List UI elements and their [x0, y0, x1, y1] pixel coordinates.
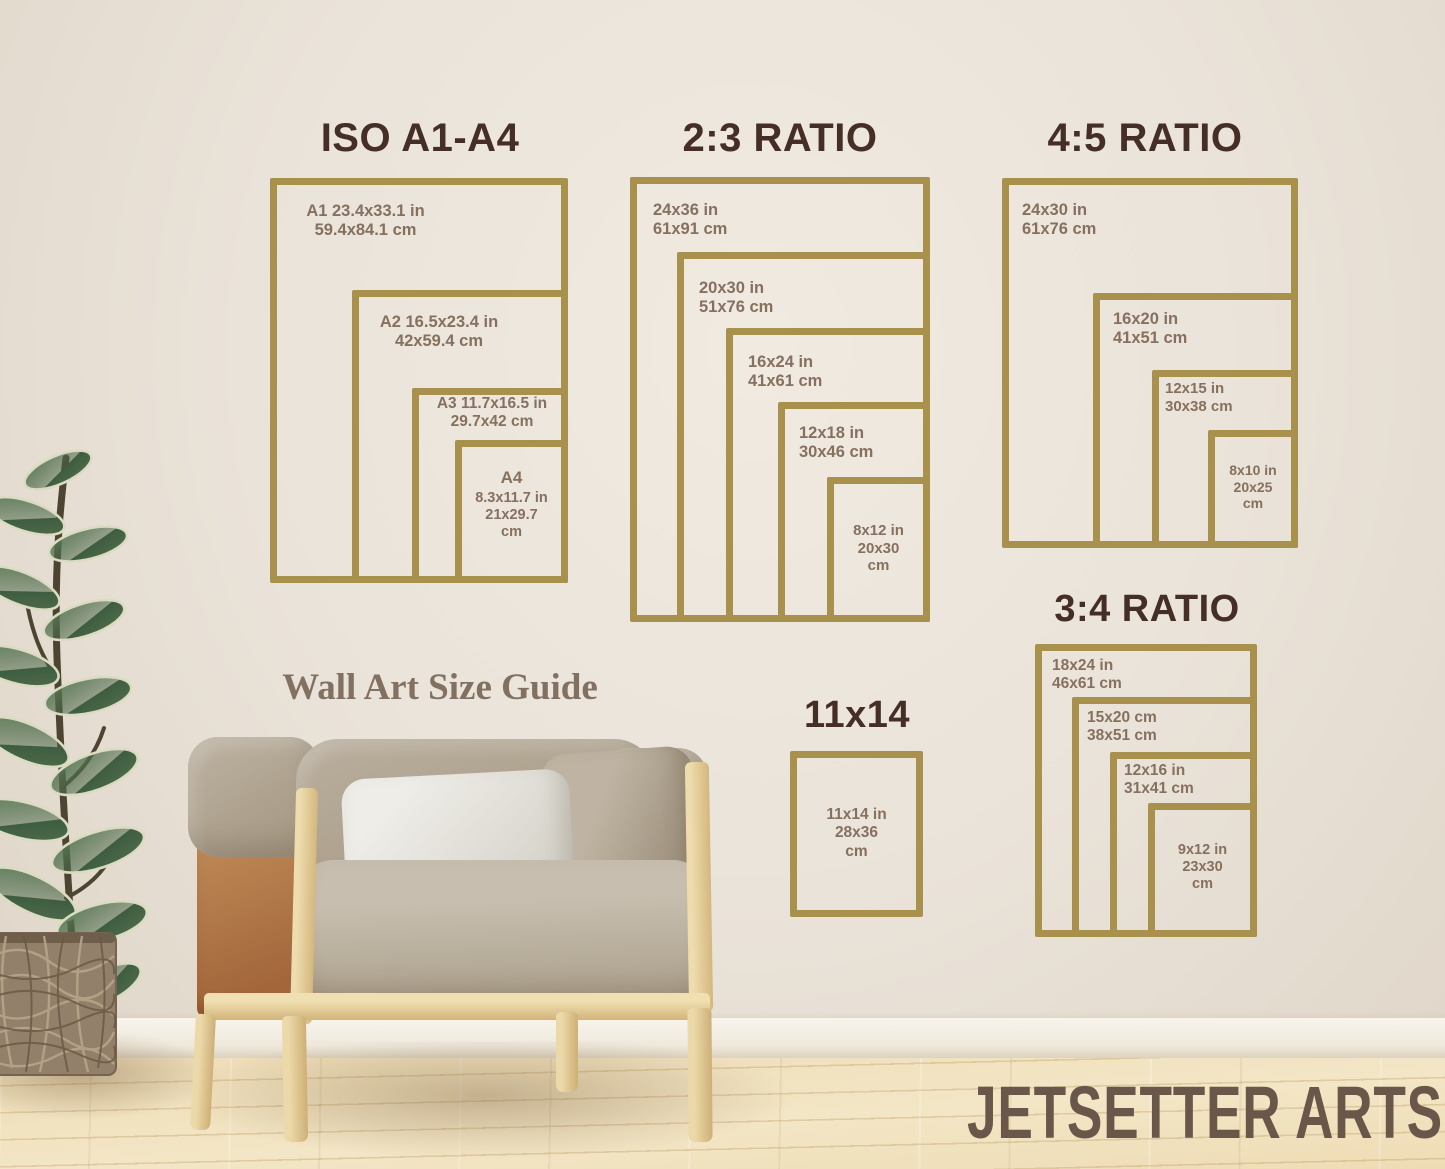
size-label-line: 59.4x84.1 cm — [288, 221, 443, 240]
frame-label-12x16: 12x16 in 31x41 cm — [1124, 762, 1242, 799]
chair-wood-rail — [204, 993, 710, 1020]
frame-label-a4: A4 8.3x11.7 in 21x29.7 cm — [459, 468, 564, 541]
group-title-iso: ISO A1-A4 — [270, 118, 570, 158]
size-label-line: 8x12 in — [830, 522, 927, 540]
chair-leg-rear-right — [556, 1012, 578, 1092]
frame-label-12x18: 12x18 in 30x46 cm — [799, 424, 919, 463]
frame-label-9x12: 9x12 in 23x30 cm — [1150, 842, 1255, 893]
size-label-line: 41x61 cm — [748, 372, 868, 391]
group-title-11x14: 11x14 — [787, 696, 927, 734]
frame-label-12x15: 12x15 in 30x38 cm — [1165, 380, 1275, 415]
size-label-line: A1 23.4x33.1 in — [288, 202, 443, 221]
size-label-line: 31x41 cm — [1124, 780, 1242, 798]
size-label-line: 46x61 cm — [1052, 675, 1170, 693]
size-label-line: 15x20 cm — [1087, 709, 1205, 727]
frame-label-24x36: 24x36 in 61x91 cm — [653, 201, 773, 240]
size-label-line: 16x24 in — [748, 353, 868, 372]
guide-title: Wall Art Size Guide — [250, 666, 630, 709]
frame-label-11x14: 11x14 in 28x36 cm — [793, 806, 920, 861]
size-label-line: A3 11.7x16.5 in — [422, 395, 562, 413]
size-label-line: 9x12 in — [1150, 842, 1255, 859]
size-label-line: cm — [830, 557, 927, 575]
size-label-line: 61x76 cm — [1022, 220, 1142, 239]
size-label-line: 18x24 in — [1052, 657, 1170, 675]
size-label-line: 30x38 cm — [1165, 398, 1275, 416]
frame-label-8x10: 8x10 in 20x25 cm — [1210, 462, 1296, 512]
size-label-line: 51x76 cm — [699, 298, 819, 317]
frame-label-16x24: 16x24 in 41x61 cm — [748, 353, 868, 392]
brand-text: JETSETTER ARTS — [967, 1076, 1443, 1150]
frame-label-a3: A3 11.7x16.5 in 29.7x42 cm — [422, 395, 562, 432]
frame-label-a1: A1 23.4x33.1 in 59.4x84.1 cm — [288, 202, 443, 241]
size-label-line: 30x46 cm — [799, 443, 919, 462]
size-label-line: 29.7x42 cm — [422, 413, 562, 431]
plant-leaves — [0, 443, 151, 1018]
size-label-line: 20x30 — [830, 540, 927, 558]
chair-leg-front-right — [687, 1008, 712, 1142]
room-scene: ISO A1-A4 A1 23.4x33.1 in 59.4x84.1 cm A… — [0, 0, 1445, 1169]
frame-label-15x20: 15x20 cm 38x51 cm — [1087, 709, 1205, 746]
group-title-4-5: 4:5 RATIO — [995, 118, 1295, 158]
size-label-line: 38x51 cm — [1087, 727, 1205, 745]
size-label-line: cm — [793, 843, 920, 861]
frame-label-20x30: 20x30 in 51x76 cm — [699, 279, 819, 318]
potted-plant — [0, 428, 196, 1078]
chair-seat-cushion — [297, 860, 709, 1005]
frame-label-16x20: 16x20 in 41x51 cm — [1113, 310, 1233, 349]
frame-label-8x12: 8x12 in 20x30 cm — [830, 522, 927, 575]
size-label-line: 8.3x11.7 in — [459, 490, 564, 507]
size-label-line: 12x16 in — [1124, 762, 1242, 780]
size-label-line: 8x10 in — [1210, 462, 1296, 479]
size-label-line: 41x51 cm — [1113, 329, 1233, 348]
size-label-line: cm — [459, 524, 564, 541]
size-label-line: A2 16.5x23.4 in — [365, 313, 513, 332]
frame-label-a2: A2 16.5x23.4 in 42x59.4 cm — [365, 313, 513, 352]
size-label-line: 24x36 in — [653, 201, 773, 220]
frame-label-18x24: 18x24 in 46x61 cm — [1052, 657, 1170, 694]
size-label-line: A4 — [459, 468, 564, 488]
size-label-line: 20x30 in — [699, 279, 819, 298]
chair-leg-front-left — [282, 1016, 308, 1142]
chair-wood-post-right — [685, 762, 713, 1012]
group-title-3-4: 3:4 RATIO — [1032, 590, 1262, 628]
size-label-line: 24x30 in — [1022, 201, 1142, 220]
size-label-line: 61x91 cm — [653, 220, 773, 239]
size-label-line: cm — [1150, 876, 1255, 893]
size-label-line: 12x18 in — [799, 424, 919, 443]
size-label-line: 12x15 in — [1165, 380, 1275, 398]
size-label-line: 11x14 in — [793, 806, 920, 824]
size-label-line: 20x25 — [1210, 479, 1296, 496]
size-label-line: 28x36 — [793, 824, 920, 842]
size-label-line: 42x59.4 cm — [365, 332, 513, 351]
size-label-line: 23x30 — [1150, 859, 1255, 876]
frame-label-24x30: 24x30 in 61x76 cm — [1022, 201, 1142, 240]
size-label-line: 16x20 in — [1113, 310, 1233, 329]
group-title-2-3: 2:3 RATIO — [630, 118, 930, 158]
size-label-line: cm — [1210, 495, 1296, 512]
plant-basket — [0, 933, 116, 1075]
size-label-line: 21x29.7 — [459, 507, 564, 524]
